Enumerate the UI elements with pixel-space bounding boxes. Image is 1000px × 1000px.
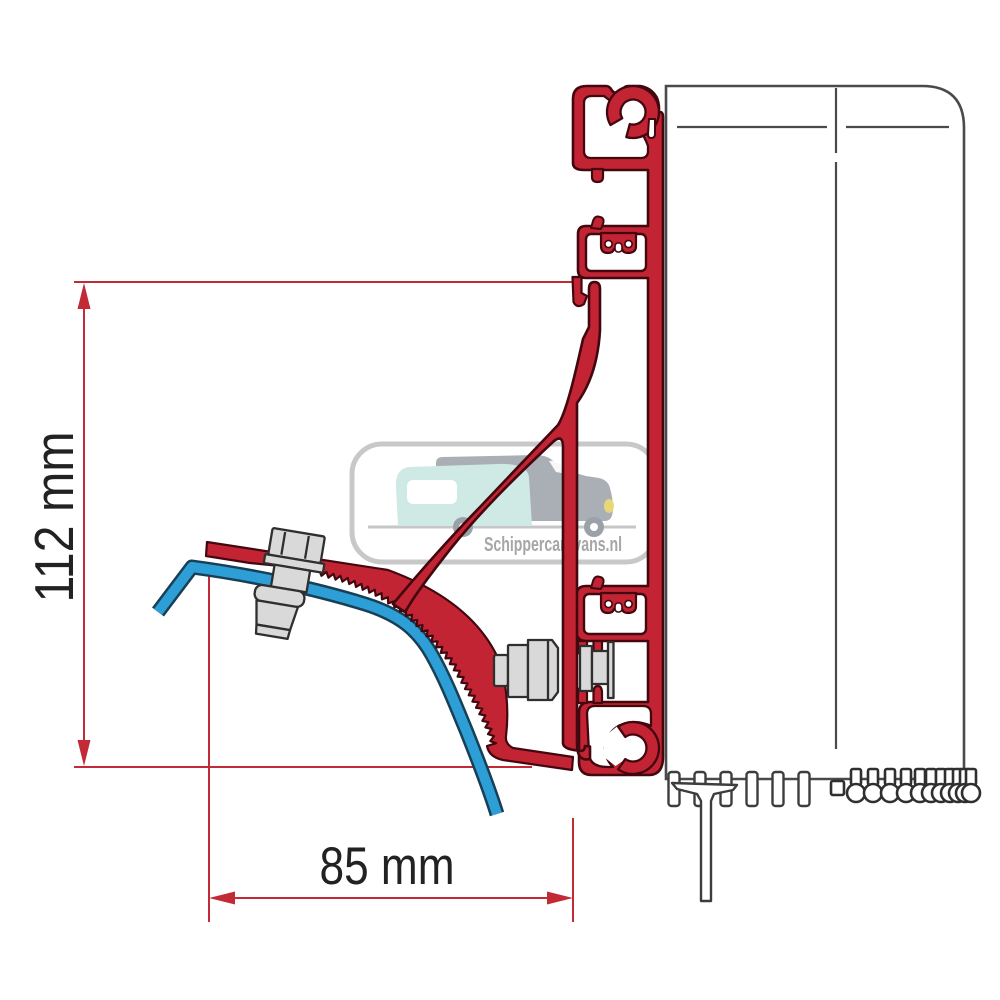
svg-text:Schippercaravans.nl: Schippercaravans.nl: [484, 534, 622, 556]
svg-text:85 mm: 85 mm: [320, 837, 455, 896]
svg-text:112 mm: 112 mm: [23, 432, 85, 603]
